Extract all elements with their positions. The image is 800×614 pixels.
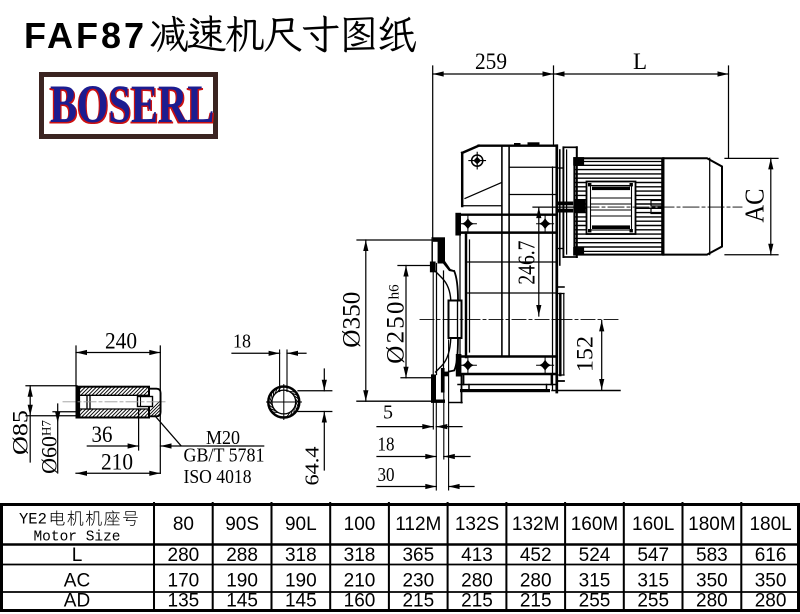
svg-text:145: 145 — [285, 591, 317, 612]
svg-text:112M: 112M — [395, 514, 441, 535]
svg-text:64.4: 64.4 — [302, 447, 324, 486]
svg-text:100: 100 — [344, 514, 376, 535]
svg-text:413: 413 — [461, 545, 493, 566]
svg-text:215: 215 — [520, 591, 552, 612]
svg-text:288: 288 — [226, 545, 258, 566]
svg-text:L: L — [633, 49, 647, 74]
svg-text:180L: 180L — [749, 514, 791, 535]
svg-text:5: 5 — [383, 402, 393, 424]
svg-text:246.7: 246.7 — [515, 241, 541, 285]
svg-text:210: 210 — [101, 450, 133, 475]
svg-text:ISO 4018: ISO 4018 — [184, 466, 252, 488]
svg-text:Ø350: Ø350 — [339, 292, 366, 348]
svg-text:90L: 90L — [285, 514, 317, 535]
svg-text:36: 36 — [92, 422, 113, 447]
svg-text:280: 280 — [755, 591, 787, 612]
svg-text:350: 350 — [696, 571, 728, 592]
svg-text:152: 152 — [573, 336, 598, 372]
svg-text:315: 315 — [637, 571, 669, 592]
svg-text:Ø85: Ø85 — [8, 410, 33, 455]
svg-text:YE2: YE2 — [19, 511, 47, 529]
svg-text:30: 30 — [378, 464, 395, 486]
svg-text:170: 170 — [168, 571, 200, 592]
svg-text:145: 145 — [226, 591, 258, 612]
svg-text:18: 18 — [233, 331, 251, 353]
svg-text:Motor Size: Motor Size — [33, 530, 120, 546]
svg-text:365: 365 — [402, 545, 434, 566]
svg-text:190: 190 — [226, 571, 258, 592]
svg-text:135: 135 — [168, 591, 200, 612]
svg-text:160M: 160M — [571, 514, 619, 535]
svg-text:616: 616 — [755, 545, 787, 566]
svg-text:583: 583 — [696, 545, 728, 566]
svg-text:318: 318 — [285, 545, 317, 566]
svg-text:18: 18 — [378, 434, 395, 456]
svg-text:547: 547 — [637, 545, 669, 566]
svg-text:255: 255 — [579, 591, 611, 612]
svg-text:280: 280 — [461, 571, 493, 592]
svg-text:215: 215 — [402, 591, 434, 612]
svg-text:190: 190 — [285, 571, 317, 592]
svg-text:80: 80 — [173, 514, 194, 535]
svg-text:315: 315 — [579, 571, 611, 592]
svg-text:210: 210 — [344, 571, 376, 592]
svg-text:255: 255 — [637, 591, 669, 612]
svg-text:160: 160 — [344, 591, 376, 612]
svg-text:350: 350 — [755, 571, 787, 592]
svg-text:L: L — [72, 545, 83, 566]
svg-text:215: 215 — [461, 591, 493, 612]
svg-text:AD: AD — [64, 591, 90, 612]
svg-text:132S: 132S — [455, 514, 499, 535]
svg-text:GB/T 5781: GB/T 5781 — [184, 445, 265, 467]
svg-text:280: 280 — [168, 545, 200, 566]
svg-text:452: 452 — [520, 545, 552, 566]
svg-text:AC: AC — [740, 189, 770, 223]
svg-text:160L: 160L — [632, 514, 674, 535]
svg-text:180M: 180M — [688, 514, 736, 535]
svg-text:240: 240 — [105, 329, 137, 354]
svg-text:259: 259 — [475, 49, 507, 74]
svg-text:230: 230 — [402, 571, 434, 592]
svg-text:524: 524 — [579, 545, 611, 566]
svg-text:280: 280 — [520, 571, 552, 592]
svg-text:280: 280 — [696, 591, 728, 612]
svg-text:318: 318 — [344, 545, 376, 566]
svg-text:AC: AC — [64, 571, 90, 592]
svg-text:90S: 90S — [225, 514, 259, 535]
svg-text:132M: 132M — [512, 514, 560, 535]
